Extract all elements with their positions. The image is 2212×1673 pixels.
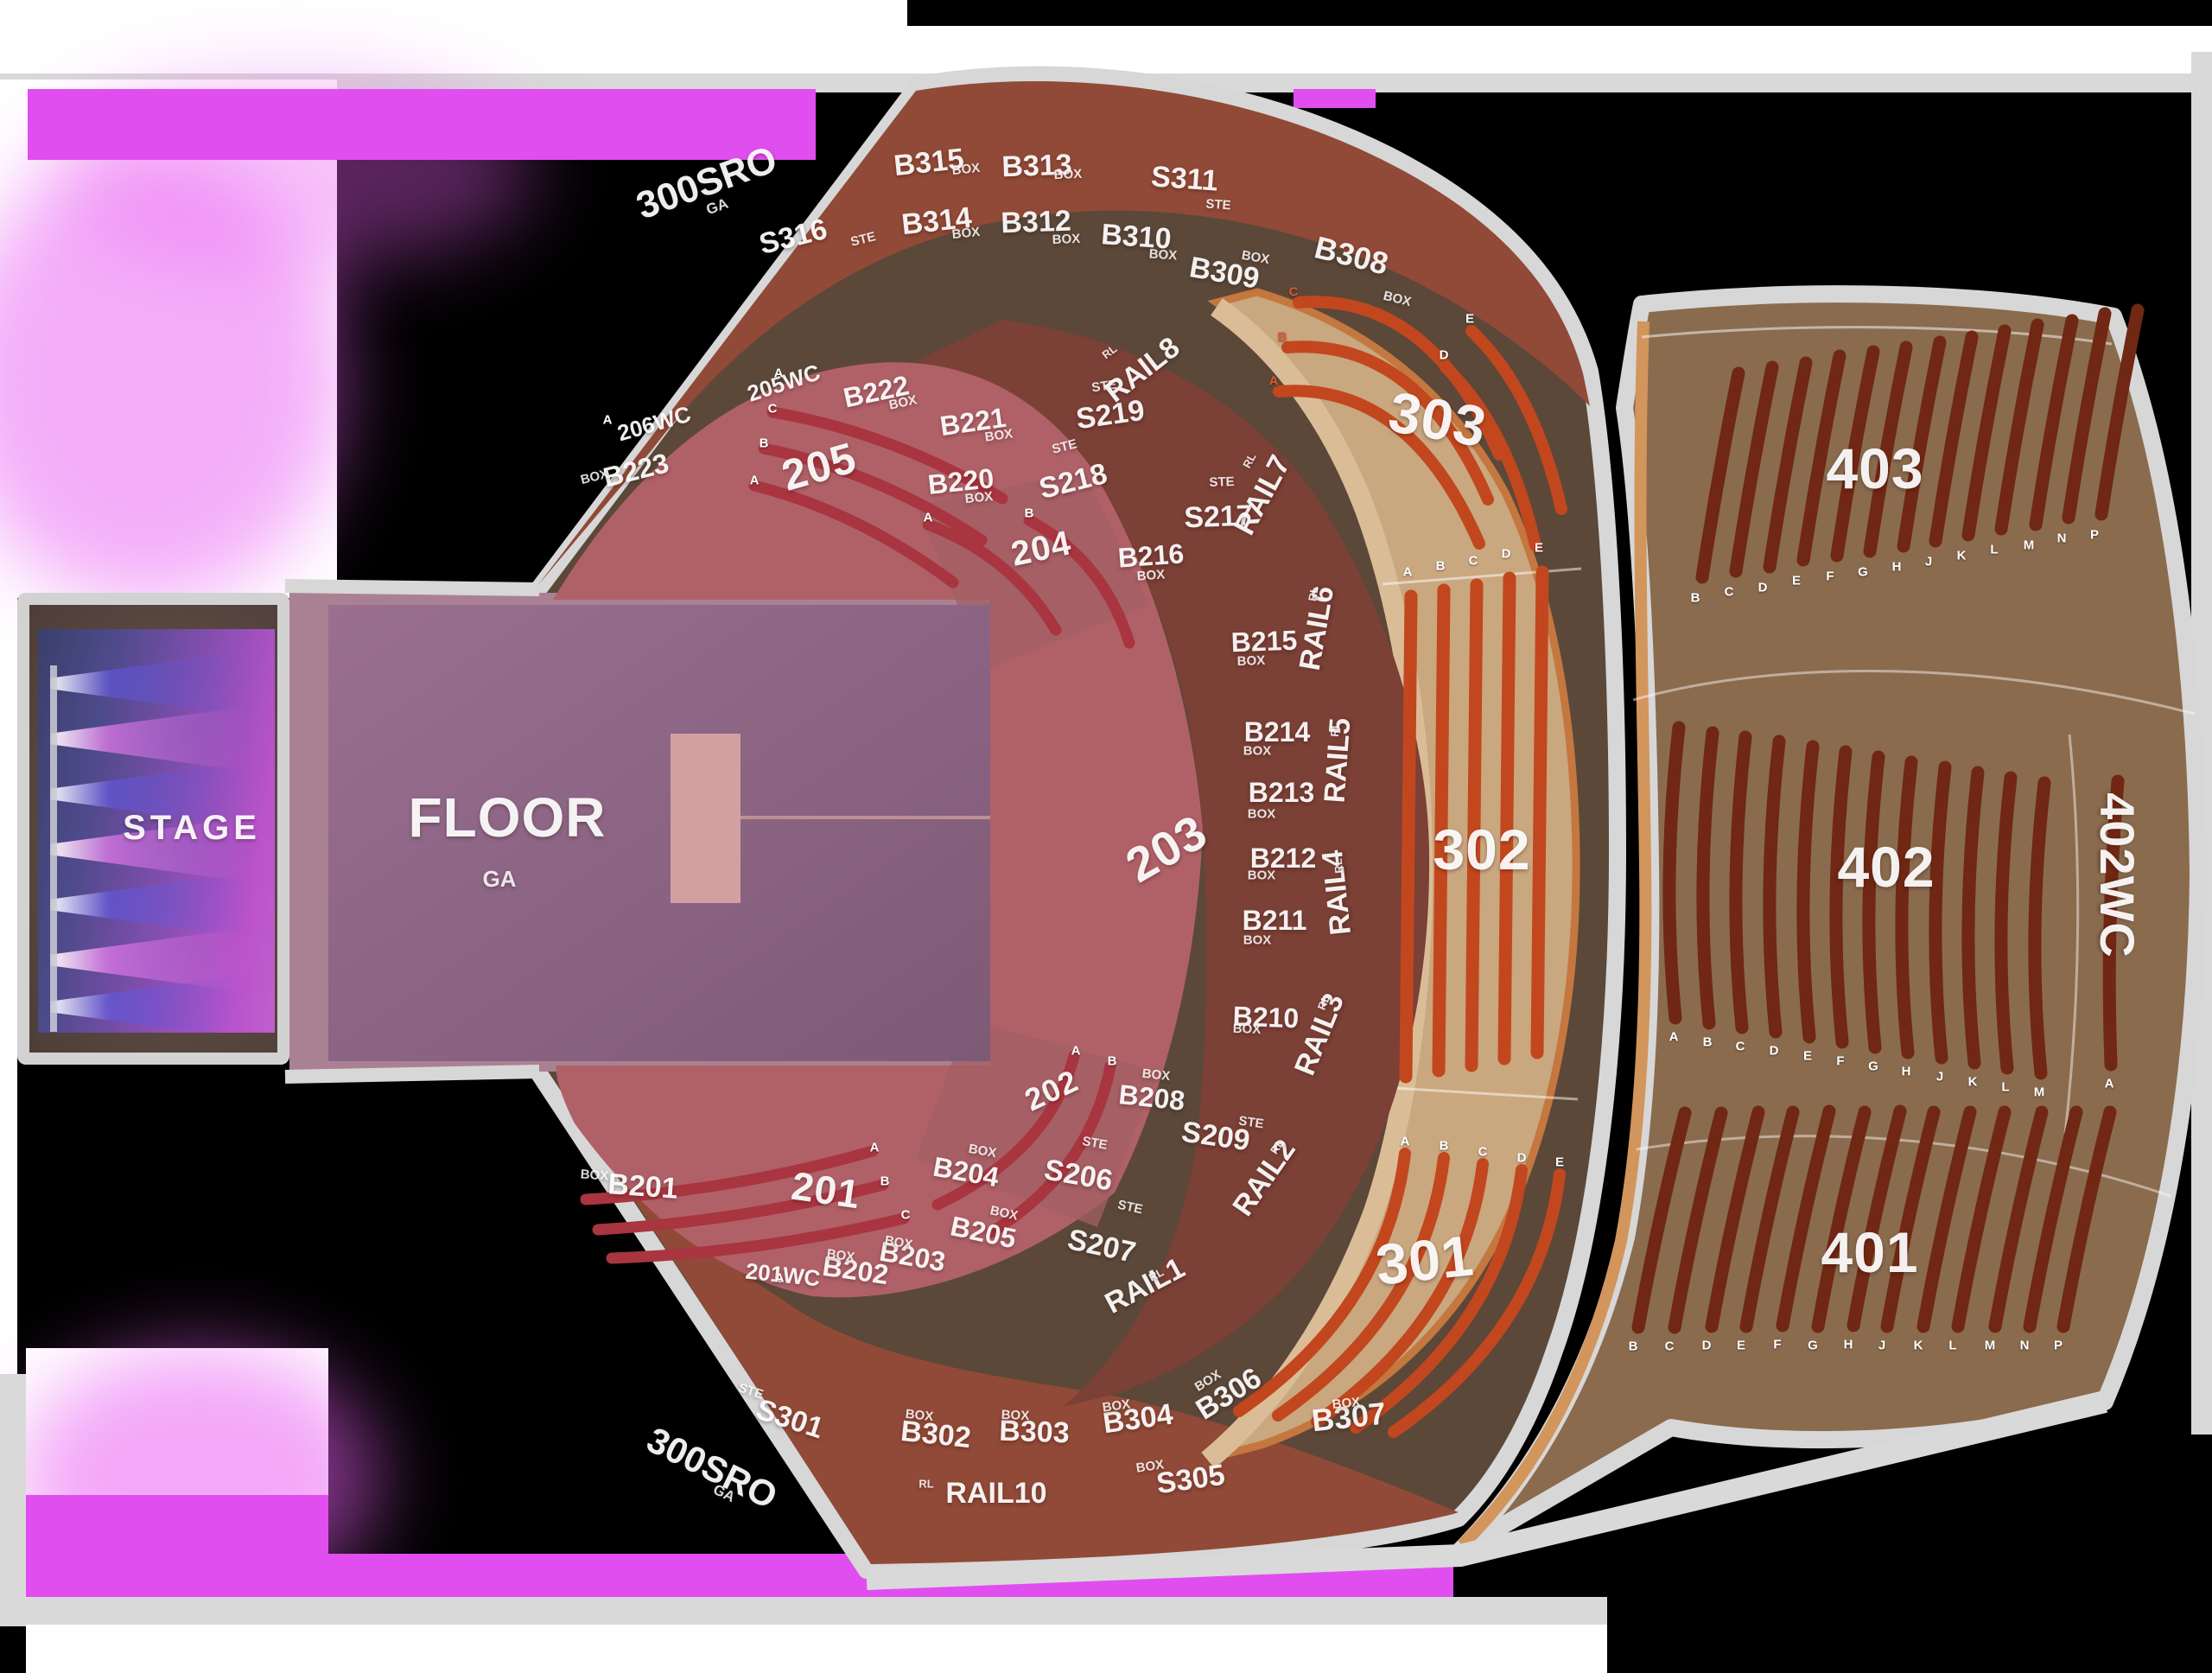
section-b208[interactable]: B208 [1117, 1080, 1185, 1115]
row-letter-403-F: F [1826, 570, 1834, 583]
tag-b201-box: BOX [580, 1167, 608, 1182]
row-letter-402-J: J [1936, 1071, 1943, 1084]
stage-beam [50, 871, 257, 938]
row-letter-202-B: B [1108, 1055, 1117, 1068]
section-402wc[interactable]: 402WC [2093, 792, 2141, 958]
row-letter-303L-C: C [1289, 286, 1299, 299]
tag-s209-ste: STE [1238, 1115, 1265, 1131]
row-letter-401-C: C [1665, 1340, 1675, 1353]
row-letter-wc-A: A [774, 367, 784, 380]
section-303[interactable]: 303 [1385, 383, 1491, 456]
row-letter-202-A: A [1071, 1045, 1081, 1058]
section-s311[interactable]: S311 [1150, 162, 1219, 195]
row-letter-301-D: D [1517, 1152, 1527, 1165]
tag-b215-box: BOX [1236, 654, 1265, 668]
row-letter-402-D: D [1770, 1045, 1779, 1058]
row-letter-201-B: B [880, 1175, 890, 1188]
section-b216[interactable]: B216 [1117, 539, 1185, 571]
section-401[interactable]: 401 [1821, 1224, 1918, 1281]
row-letter-401-M: M [1985, 1339, 1996, 1352]
tag-b214-box: BOX [1243, 745, 1272, 758]
tag-b202-box: BOX [826, 1247, 855, 1263]
row-letter-403-C: C [1725, 586, 1734, 599]
row-letter-402-M: M [2034, 1086, 2045, 1099]
tag-b212-box: BOX [1248, 869, 1276, 882]
floor-booth [671, 734, 741, 903]
row-letter-403-N: N [2057, 532, 2067, 545]
row-letter-204-A: A [924, 512, 933, 525]
floor-ga-label: GA [483, 868, 517, 890]
row-letter-302-E: E [1535, 542, 1543, 555]
row-letter-wc-A: A [775, 1272, 785, 1285]
row-letter-403-B: B [1691, 592, 1700, 605]
tag-rail5-rl: RL [1329, 722, 1341, 737]
section-b213[interactable]: B213 [1249, 779, 1315, 806]
section-b201[interactable]: B201 [607, 1169, 678, 1204]
row-letter-301-B: B [1440, 1140, 1449, 1153]
row-letter-403-K: K [1957, 550, 1967, 563]
tag-s311-ste: STE [1205, 198, 1231, 213]
tag-b303-box: BOX [1001, 1409, 1029, 1422]
row-letter-303R-D: D [1440, 349, 1449, 362]
row-letter-402-K: K [1968, 1076, 1978, 1089]
row-letter-402-B: B [1703, 1036, 1713, 1049]
section-402[interactable]: 402 [1837, 838, 1935, 895]
row-letter-205-A: A [750, 474, 760, 487]
tag-b210-box: BOX [1232, 1022, 1261, 1036]
stage-beam [50, 705, 257, 773]
tag-b314-box: BOX [951, 226, 981, 241]
row-letter-wc-A: A [603, 414, 613, 427]
tag-b221-box: BOX [984, 427, 1014, 443]
row-letter-401-E: E [1737, 1339, 1745, 1352]
row-letter-204-B: B [1025, 507, 1034, 520]
row-letter-205-B: B [760, 437, 769, 450]
tag-s305-box: BOX [1135, 1458, 1165, 1474]
row-letter-302-C: C [1469, 555, 1478, 568]
section-b214[interactable]: B214 [1244, 718, 1311, 746]
row-letter-403-E: E [1792, 575, 1801, 588]
row-letter-303L-A: A [1269, 375, 1279, 388]
section-201[interactable]: 201 [789, 1166, 862, 1215]
stage-light-bar [50, 665, 57, 1032]
section-301[interactable]: 301 [1373, 1226, 1476, 1293]
seating-chart: 300SROGAS316STEB315BOXB313BOXB314BOXB312… [0, 0, 2212, 1673]
row-letter-402-F: F [1836, 1055, 1844, 1068]
row-letter-302-B: B [1436, 560, 1446, 573]
section-b211[interactable]: B211 [1243, 906, 1307, 934]
row-letter-403-P: P [2090, 529, 2099, 542]
row-letter-401-P: P [2054, 1339, 2063, 1352]
row-letter-302-D: D [1502, 548, 1511, 561]
row-letter-403-L: L [1990, 544, 1998, 557]
tag-b211-box: BOX [1243, 934, 1272, 947]
section-403[interactable]: 403 [1826, 440, 1923, 497]
section-b215[interactable]: B215 [1230, 627, 1298, 657]
row-letter-403-H: H [1892, 561, 1902, 574]
row-letter-401-B: B [1629, 1340, 1638, 1353]
tag-b312-box: BOX [1052, 232, 1080, 246]
tag-rail4-rl: RL [1332, 858, 1345, 875]
tag-b216-box: BOX [1136, 568, 1165, 582]
row-letter-403-M: M [2024, 539, 2035, 552]
row-letter-402-G: G [1868, 1060, 1878, 1073]
tag-b304-box: BOX [1102, 1397, 1131, 1414]
row-letter-401-H: H [1844, 1339, 1853, 1352]
row-letter-403-G: G [1858, 566, 1868, 579]
row-letter-403-D: D [1758, 582, 1768, 595]
tag-b208-box: BOX [1141, 1067, 1171, 1083]
tag-b220-box: BOX [964, 490, 994, 506]
row-letter-402-E: E [1803, 1050, 1812, 1063]
row-letter-401-K: K [1914, 1339, 1923, 1352]
row-letter-402-H: H [1902, 1066, 1911, 1078]
row-letter-205-C: C [768, 403, 778, 416]
tag-b302-box: BOX [905, 1408, 934, 1423]
row-letter-201-C: C [901, 1209, 911, 1222]
row-letter-401-D: D [1702, 1339, 1712, 1352]
row-letter-301-A: A [1401, 1135, 1410, 1148]
row-letter-402-C: C [1736, 1040, 1745, 1053]
row-letter-402wc-A: A [2105, 1078, 2114, 1091]
tag-rail6-rl: RL [1306, 585, 1320, 601]
row-letter-303L-B: B [1278, 331, 1287, 344]
stage-beam [50, 650, 257, 717]
row-letter-401-J: J [1878, 1339, 1885, 1352]
floorband-top-border [285, 586, 539, 589]
row-letter-401-F: F [1773, 1339, 1781, 1352]
row-letter-401-L: L [1948, 1339, 1956, 1352]
floor-label[interactable]: FLOOR [409, 790, 607, 845]
stage-label: STAGE [123, 811, 261, 845]
section-302[interactable]: 302 [1433, 821, 1530, 878]
row-letter-201-A: A [870, 1142, 880, 1155]
tag-b315-box: BOX [951, 162, 981, 177]
row-letter-401-G: G [1808, 1339, 1818, 1352]
tag-s217-ste: STE [1209, 475, 1235, 489]
row-letter-401-N: N [2020, 1339, 2030, 1352]
row-letter-403-J: J [1925, 556, 1932, 569]
row-letter-402-L: L [2001, 1081, 2009, 1094]
row-letter-302-A: A [1403, 566, 1413, 579]
tag-b310-box: BOX [1148, 247, 1177, 262]
tag-rail10-rl: RL [918, 1479, 933, 1490]
section-rail10[interactable]: RAIL10 [945, 1479, 1046, 1508]
stage-beam [50, 973, 257, 1033]
row-letter-301-C: C [1478, 1146, 1488, 1159]
floorband-bottom-border [285, 1072, 539, 1077]
tag-b313-box: BOX [1053, 168, 1082, 181]
row-letter-402-A: A [1669, 1031, 1679, 1044]
row-letter-303R-E: E [1465, 313, 1474, 326]
tag-b213-box: BOX [1248, 808, 1276, 821]
row-letter-301-E: E [1555, 1156, 1564, 1169]
tag-b307-box: BOX [1332, 1396, 1361, 1411]
